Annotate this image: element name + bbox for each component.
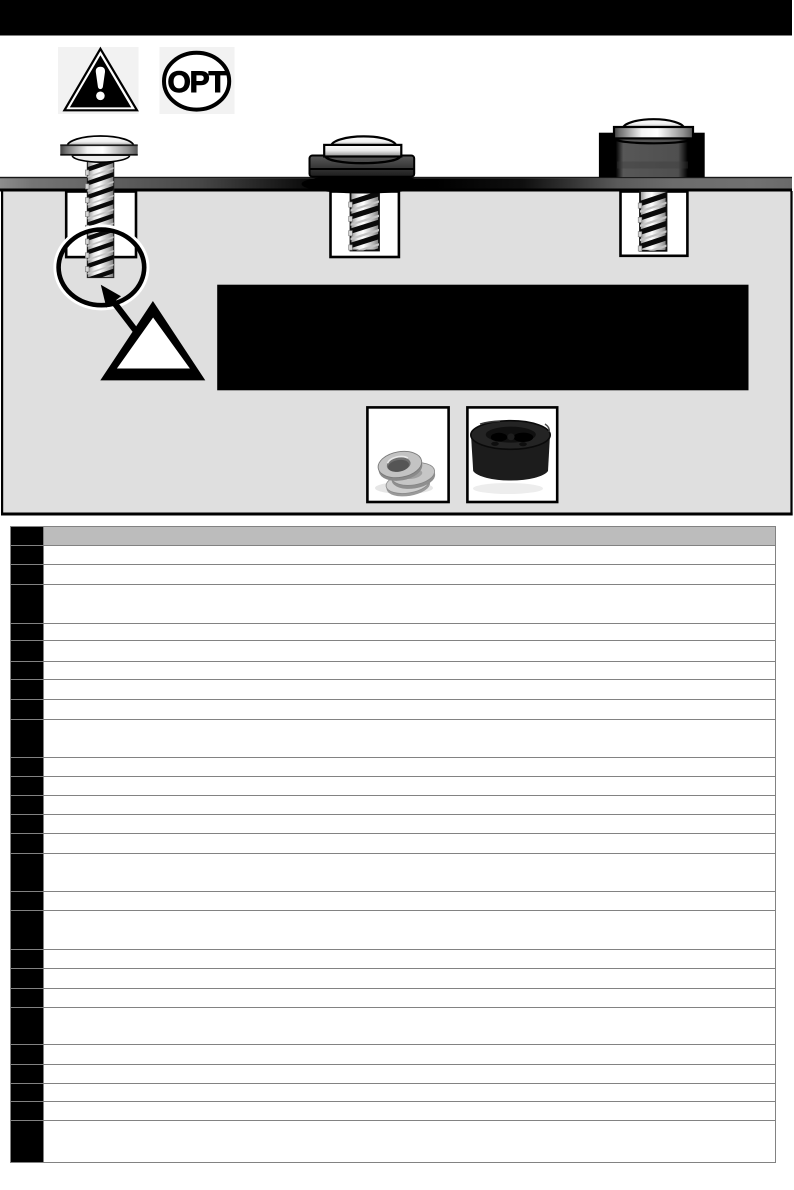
svg-text:OPT: OPT [168, 66, 227, 99]
